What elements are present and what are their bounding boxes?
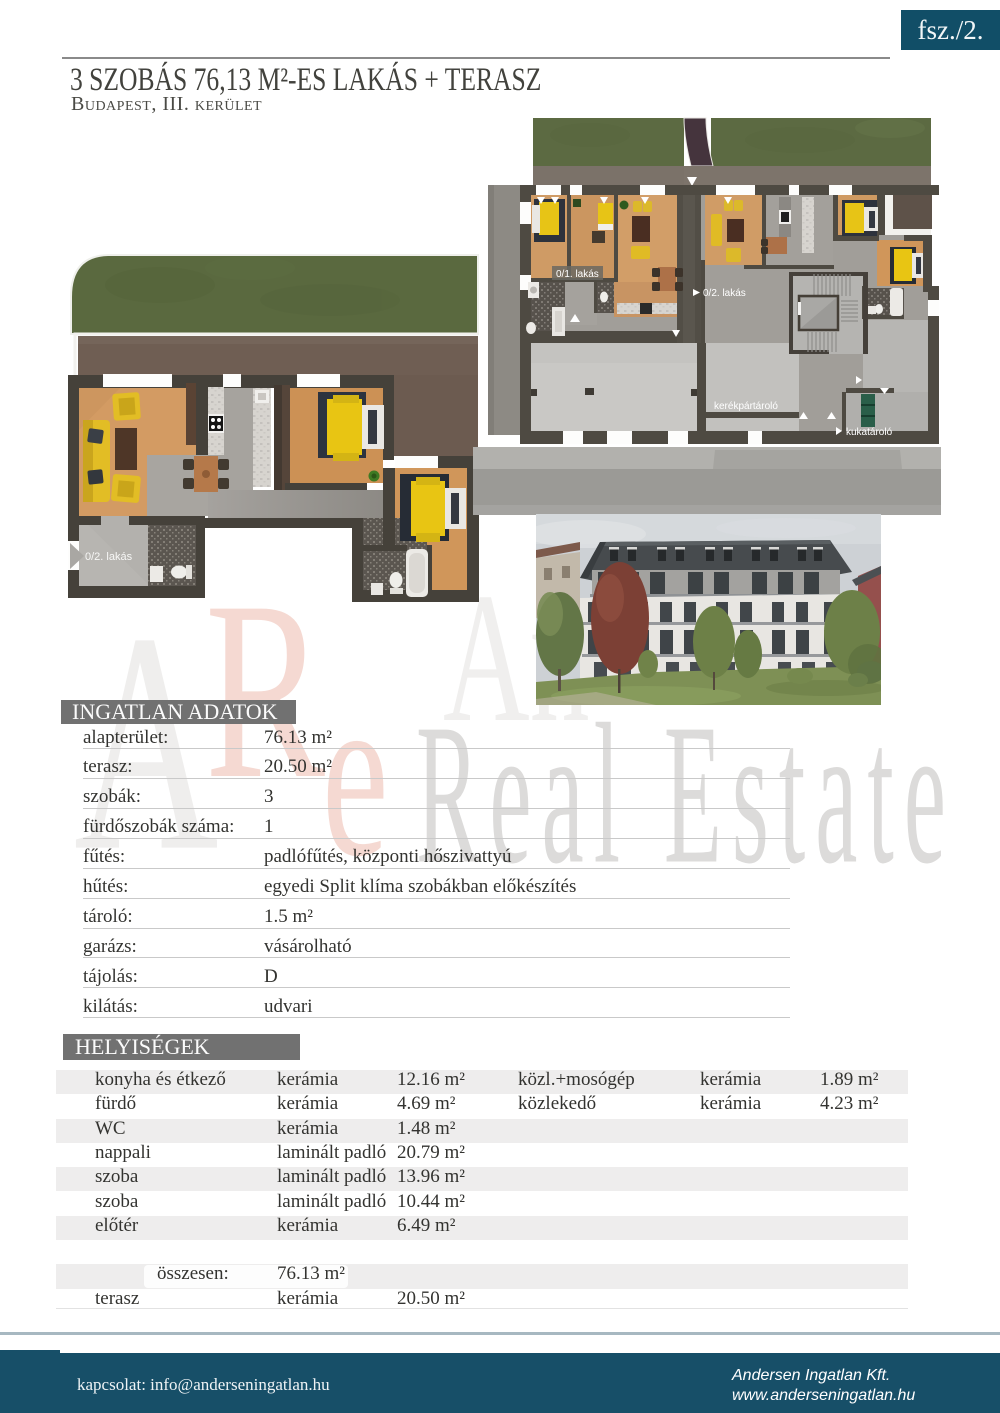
svg-text:0/2. lakás: 0/2. lakás [703,288,746,299]
svg-text:0/2. lakás: 0/2. lakás [85,551,133,563]
svg-text:kerékpártároló: kerékpártároló [714,401,778,412]
svg-text:0/1. lakás: 0/1. lakás [556,269,599,280]
svg-text:kukatároló: kukatároló [846,427,893,438]
